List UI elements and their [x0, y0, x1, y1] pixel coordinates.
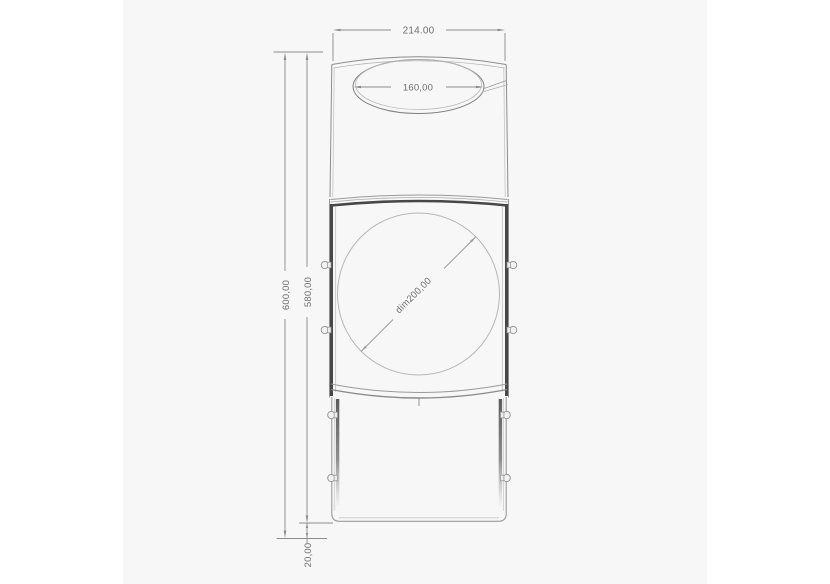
bracket-bolt [328, 411, 338, 418]
opening-width-label: 160,00 [403, 83, 433, 94]
bracket-bolt [501, 474, 511, 481]
bracket-bolt [328, 474, 338, 481]
technical-drawing-page: 214.00 160,00 600,00 580,00 20,00 [0, 0, 830, 584]
overall-height-label: 600,00 [281, 280, 292, 310]
hinge-bolt [321, 326, 331, 333]
hinge-bolt [507, 261, 517, 268]
body-height-label: 580,00 [303, 277, 314, 307]
hinge-bolt [507, 326, 517, 333]
bracket-bolt [501, 411, 511, 418]
base-clearance-label: 20,00 [303, 543, 314, 568]
overall-width-label: 214.00 [403, 26, 435, 37]
hinge-bolt [321, 261, 331, 268]
technical-drawing: 214.00 160,00 600,00 580,00 20,00 [0, 0, 830, 584]
